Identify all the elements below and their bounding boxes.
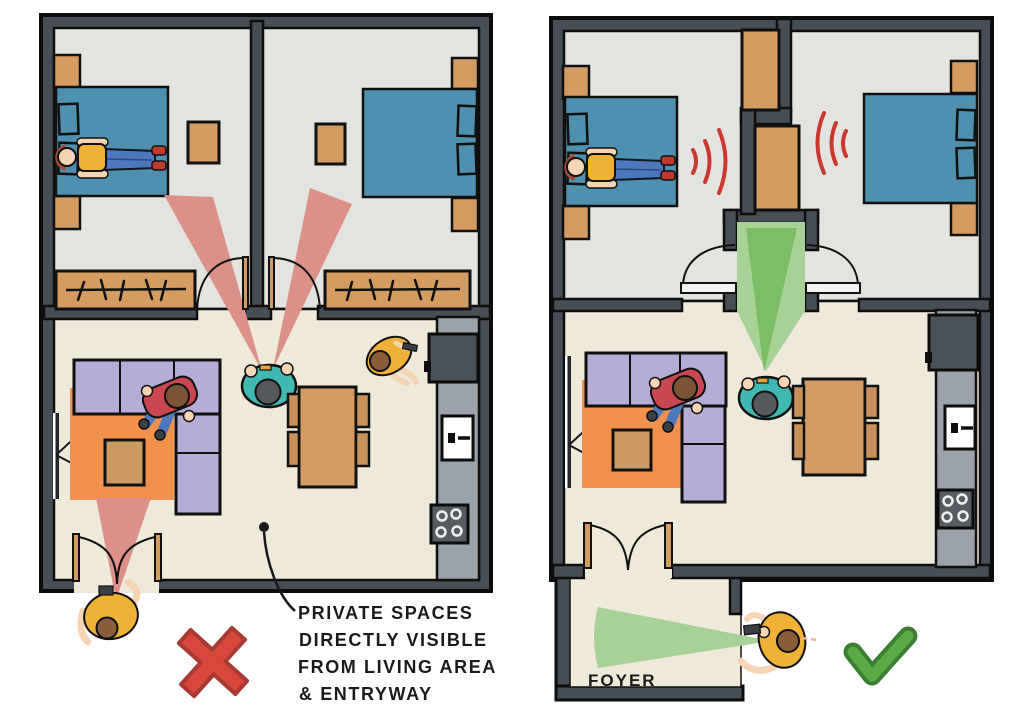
svg-text:FROM LIVING AREA: FROM LIVING AREA bbox=[298, 657, 497, 677]
svg-text:PRIVATE SPACES: PRIVATE SPACES bbox=[298, 603, 473, 623]
svg-text:FOYER: FOYER bbox=[588, 671, 657, 690]
svg-text:DIRECTLY VISIBLE: DIRECTLY VISIBLE bbox=[299, 630, 488, 650]
svg-text:& ENTRYWAY: & ENTRYWAY bbox=[299, 684, 433, 704]
